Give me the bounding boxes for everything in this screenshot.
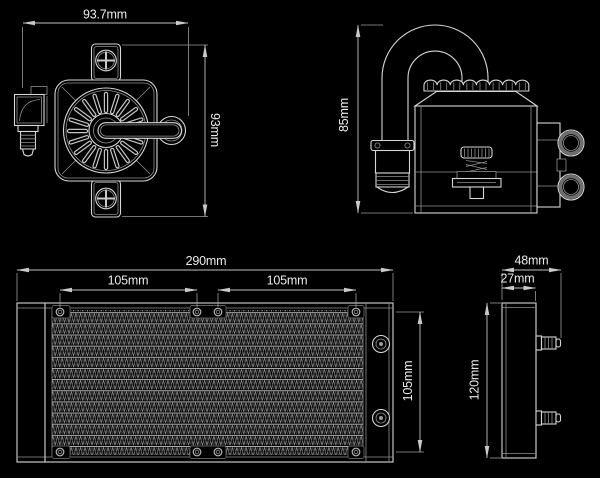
- drawing-canvas: 93.7mm 93mm: [0, 0, 600, 478]
- dim-label-pump-height: 93mm: [208, 113, 222, 147]
- hose-port-bottom: [558, 174, 584, 200]
- tube-clamp: [371, 141, 414, 193]
- dim-label-hole-span-left: 105mm: [108, 274, 149, 288]
- dim-label-pump-side-height: 85mm: [337, 98, 351, 132]
- port-divider-tab: [557, 159, 566, 171]
- hose-port-top: [558, 130, 584, 156]
- screw-hole: [352, 448, 360, 456]
- radiator-port-top: [373, 336, 390, 353]
- screw-bottom: [96, 188, 117, 209]
- technical-drawing: 93.7mm 93mm: [0, 0, 600, 478]
- dim-label-hole-span-right: 105mm: [267, 274, 308, 288]
- outlet-tube: [98, 123, 182, 139]
- screw-hole: [352, 308, 360, 316]
- top-cap: [415, 80, 537, 106]
- screw-hole: [193, 448, 201, 456]
- radiator-port-bottom: [373, 410, 390, 427]
- dim-label-radiator-height: 120mm: [468, 360, 482, 401]
- screw-hole: [56, 448, 64, 456]
- dim-label-radiator-width: 290mm: [186, 254, 227, 268]
- screw-hole: [193, 308, 201, 316]
- dim-label-pump-width: 93.7mm: [83, 8, 127, 22]
- cap-bevel: [415, 92, 537, 107]
- screw-hole: [214, 448, 222, 456]
- radiator-fins: [52, 310, 363, 455]
- screw-hole: [214, 308, 222, 316]
- screw-hole: [56, 308, 64, 316]
- radiator-side-body: [502, 303, 536, 458]
- mounting-plate: [537, 123, 560, 207]
- screw-top: [96, 50, 117, 71]
- dim-label-depth-total: 48mm: [515, 254, 549, 268]
- dim-label-hole-span-vertical: 105mm: [401, 361, 415, 402]
- dim-label-depth-core: 27mm: [501, 272, 535, 286]
